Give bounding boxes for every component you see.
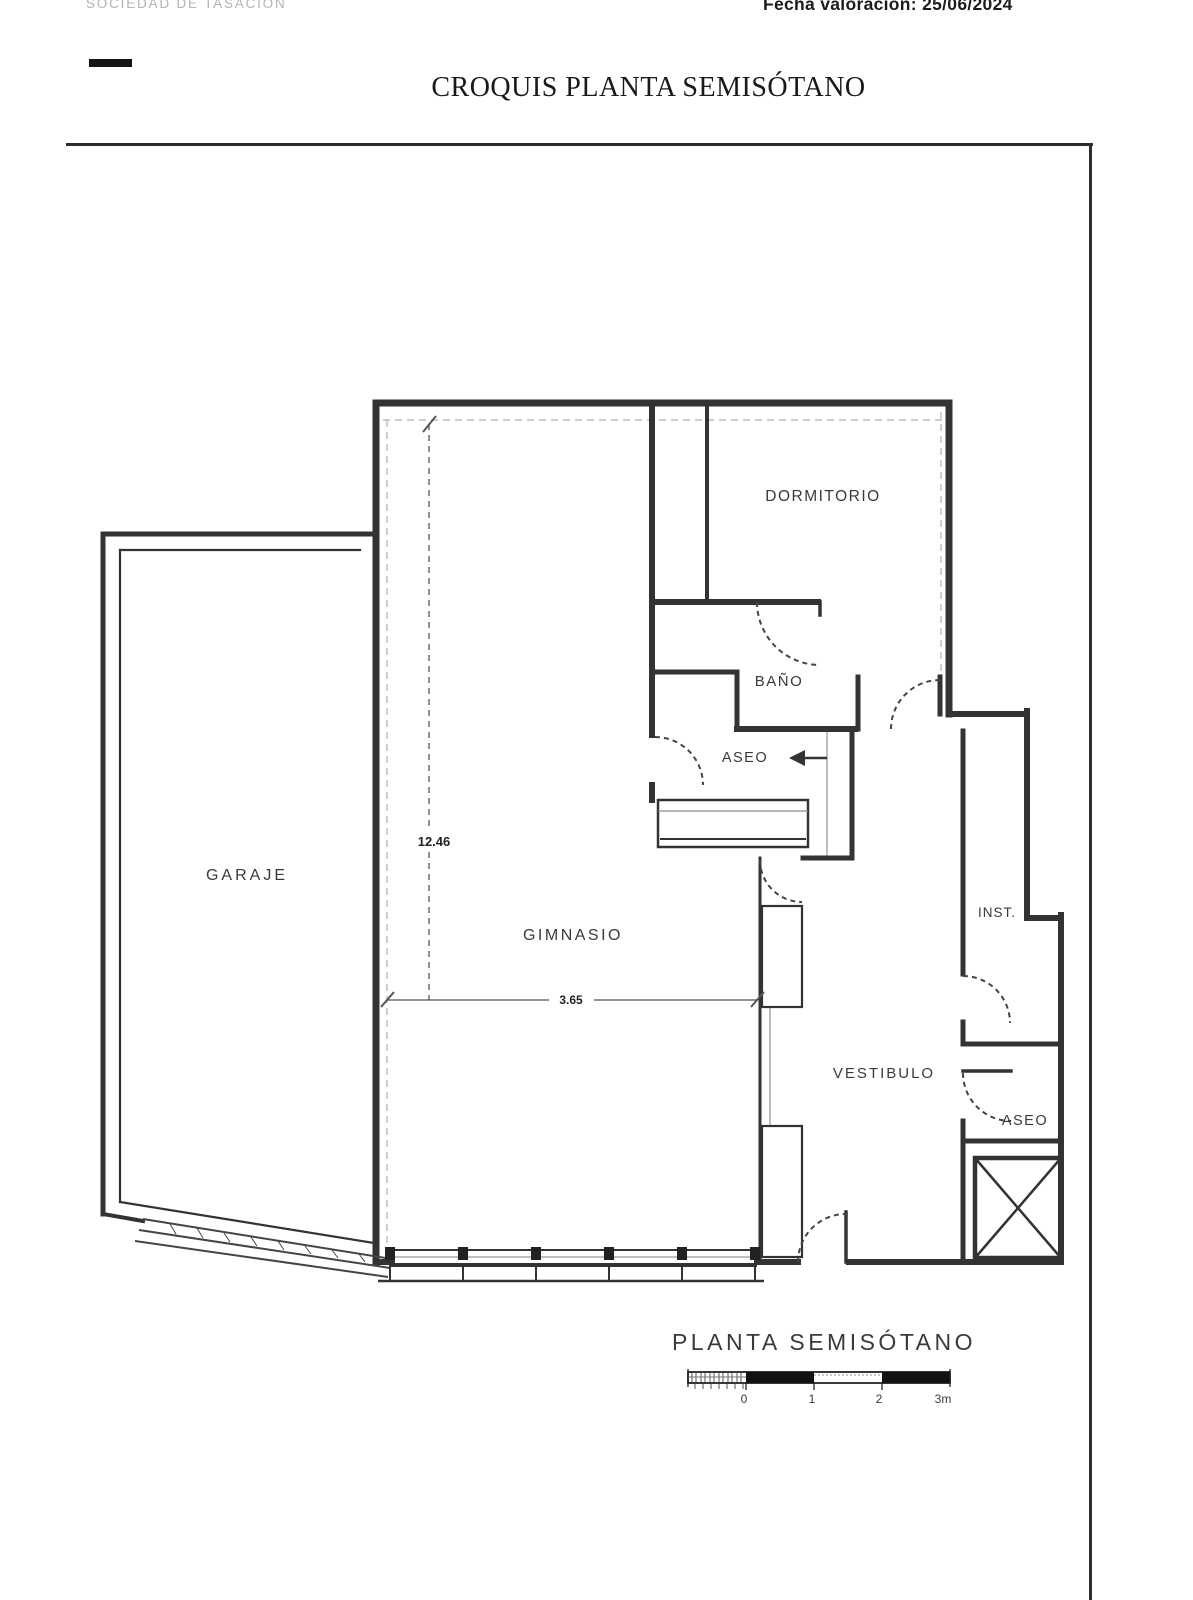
room-label-dormitorio: DORMITORIO xyxy=(765,488,880,505)
scale-tick-0: 0 xyxy=(741,1392,748,1406)
room-label-inst: INST. xyxy=(978,905,1016,920)
room-label-garaje: GARAJE xyxy=(206,867,288,884)
door-arc-entry-bottom xyxy=(798,1214,846,1262)
door-arc-corridor xyxy=(760,860,802,902)
room-labels: GARAJE GIMNASIO DORMITORIO BAÑO ASEO VES… xyxy=(206,488,1048,1129)
scale-bar: 0 1 2 3m xyxy=(688,1369,951,1406)
door-arc-inst xyxy=(963,976,1010,1023)
door-arc-aseo-central xyxy=(655,737,703,785)
room-label-gimnasio: GIMNASIO xyxy=(523,927,623,944)
door-arc-vestibulo-top xyxy=(891,680,940,729)
plan-caption: PLANTA SEMISÓTANO xyxy=(672,1329,976,1355)
door-arcs xyxy=(655,602,1011,1262)
dimension-height-label: 12.46 xyxy=(418,834,451,849)
entry-arrow xyxy=(789,750,827,766)
room-label-bano: BAÑO xyxy=(755,673,804,690)
door-arc-dormitorio xyxy=(757,602,820,665)
room-label-aseo-right: ASEO xyxy=(1002,1113,1048,1129)
vestibule-pilasters xyxy=(762,906,802,1257)
room-label-vestibulo: VESTIBULO xyxy=(833,1065,935,1082)
scale-tick-3m: 3m xyxy=(935,1392,952,1406)
dimension-width-label: 3.65 xyxy=(559,993,583,1007)
ramp-hatch xyxy=(135,1219,392,1277)
floor-plan: 12.46 3.65 GARAJE GIMNASIO DORMITORIO BA… xyxy=(0,0,1193,1600)
room-label-aseo-central: ASEO xyxy=(722,750,768,766)
window-band xyxy=(378,1247,764,1281)
scale-tick-1: 1 xyxy=(809,1392,816,1406)
scanned-appraisal-page: { "header": { "org": "SOCIEDAD DE TASACI… xyxy=(0,0,1193,1600)
garage-walls xyxy=(103,534,376,1243)
aseo-counter-block xyxy=(658,800,808,847)
scale-tick-2: 2 xyxy=(876,1392,883,1406)
elevator-shaft-x xyxy=(975,1158,1061,1258)
